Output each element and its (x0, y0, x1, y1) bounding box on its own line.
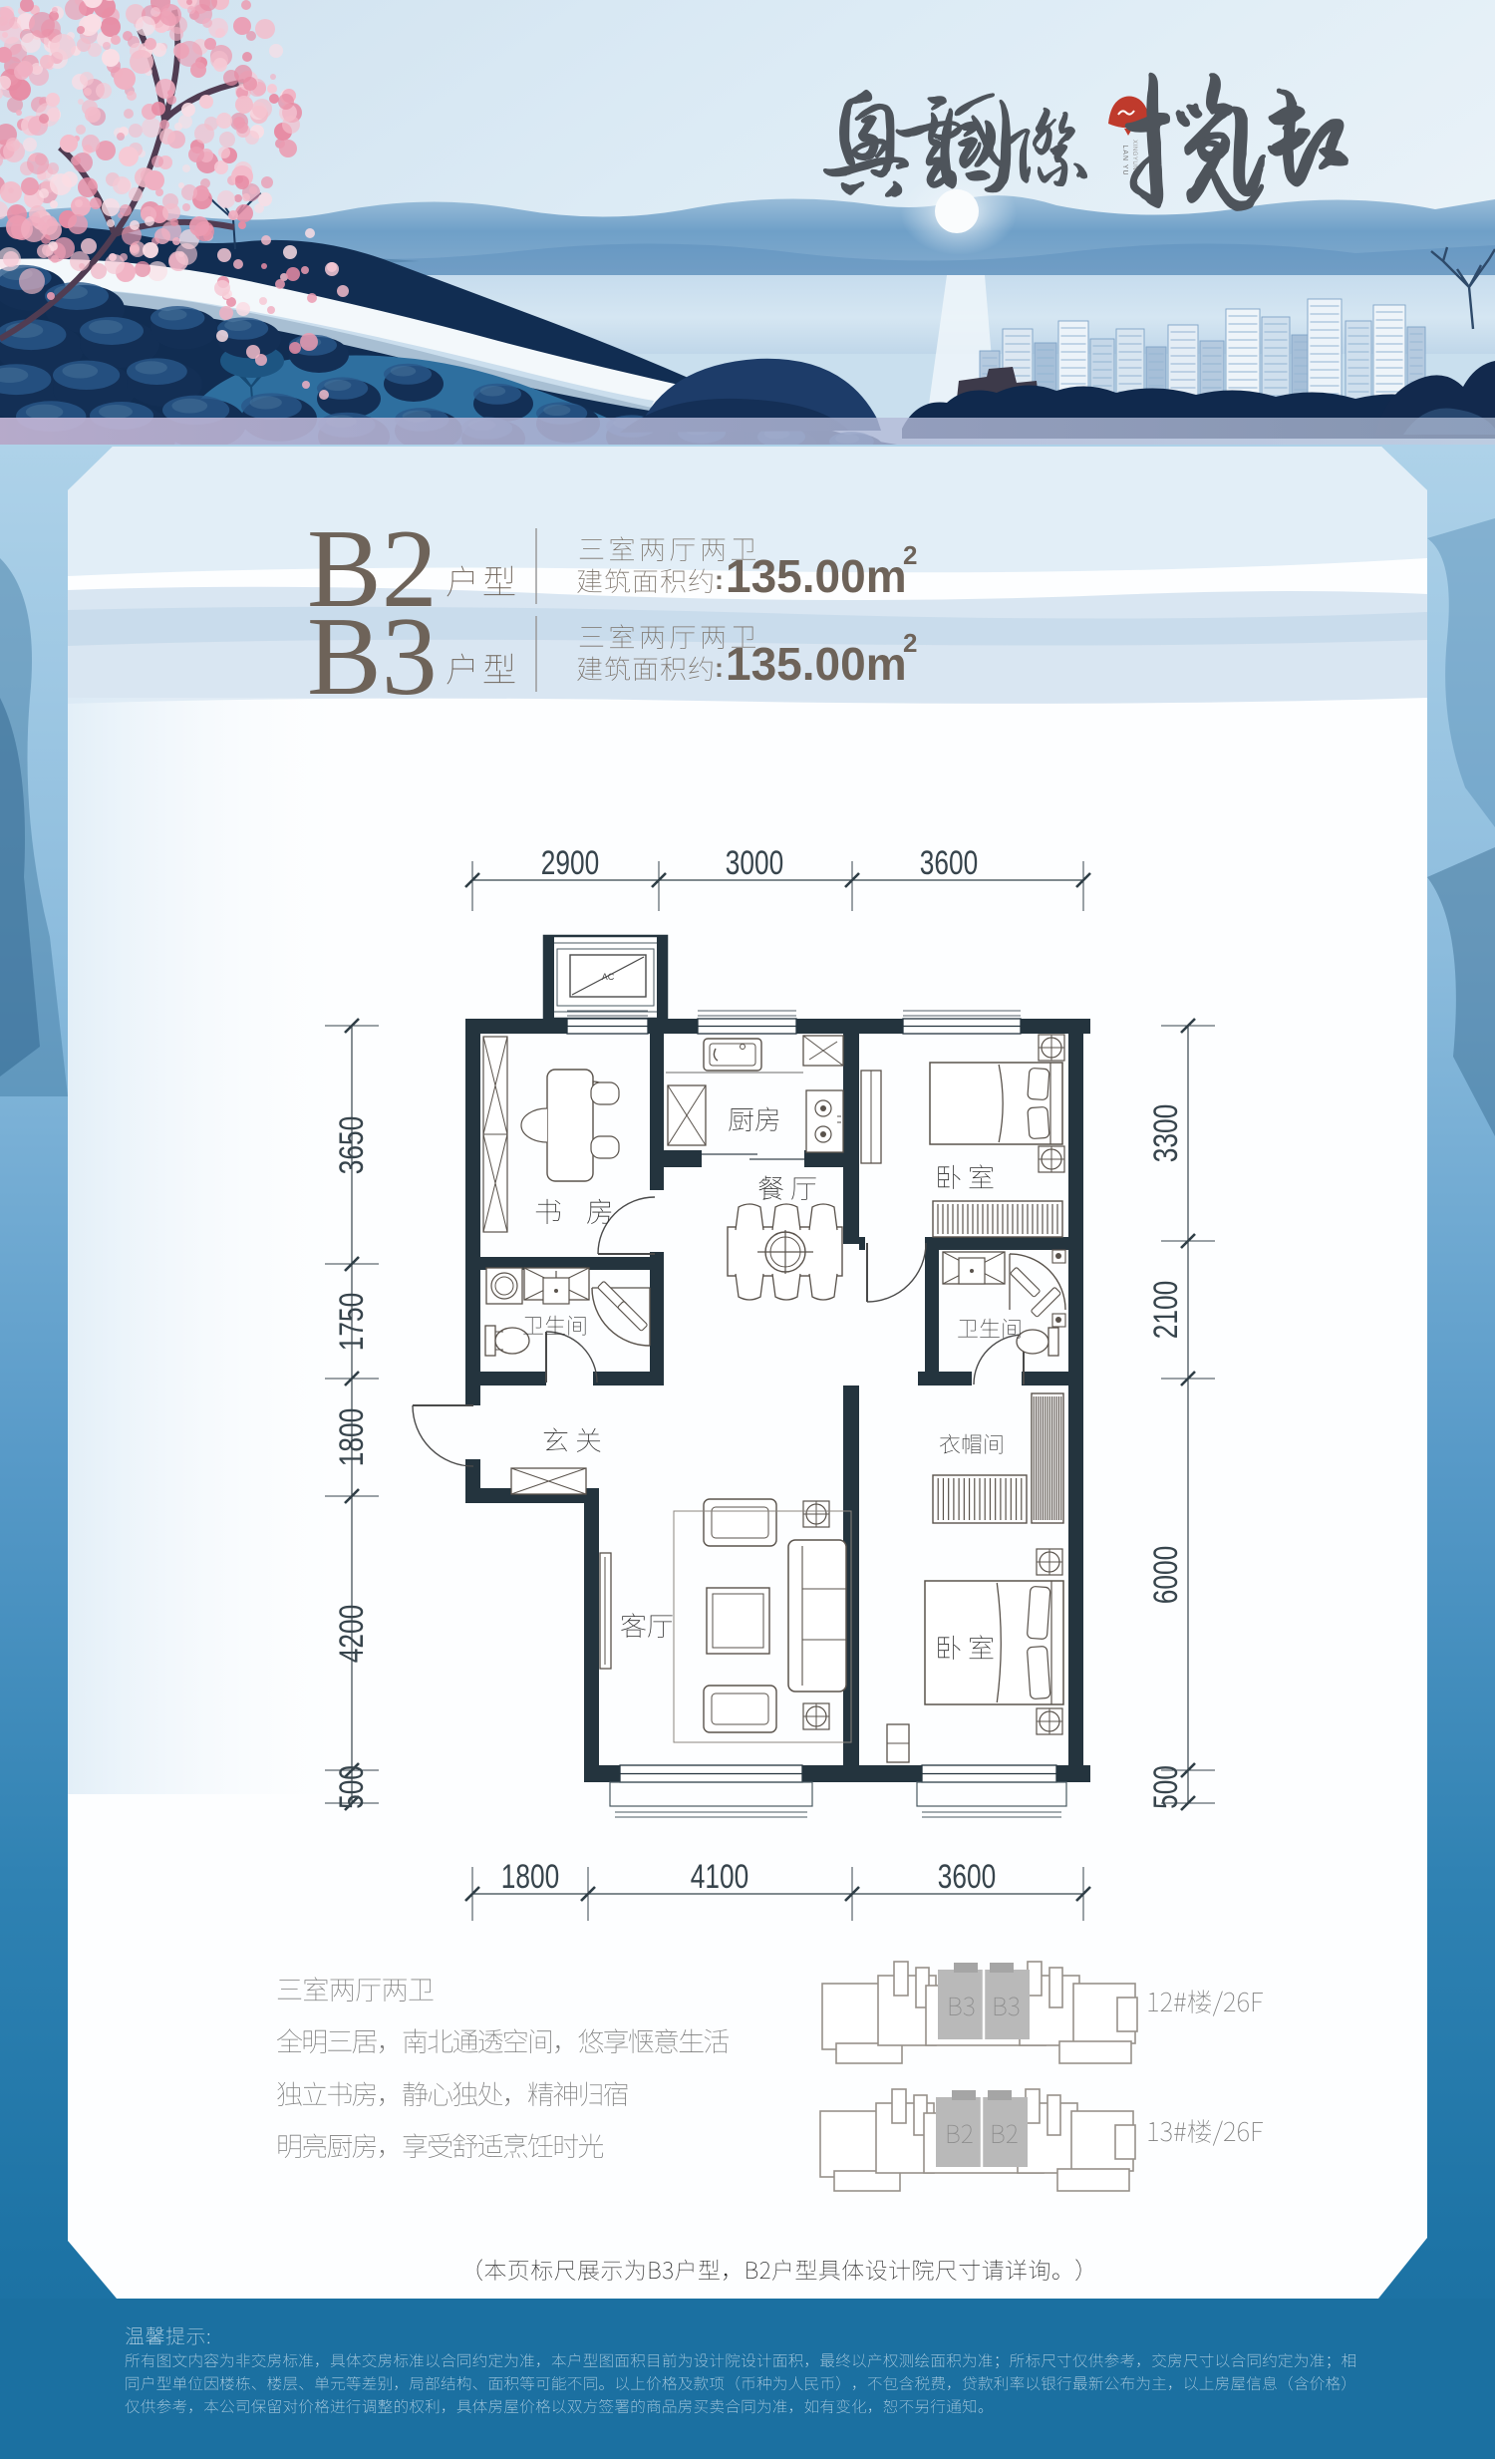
svg-text:6000: 6000 (1147, 1546, 1185, 1604)
svg-text:4100: 4100 (691, 1858, 748, 1896)
svg-text:500: 500 (333, 1765, 371, 1809)
svg-text:3600: 3600 (920, 844, 978, 882)
svg-text:3300: 3300 (1147, 1104, 1185, 1162)
svg-text:3600: 3600 (938, 1858, 996, 1896)
svg-text:2: 2 (903, 628, 917, 658)
svg-text:3650: 3650 (333, 1116, 371, 1174)
svg-text:135.00m: 135.00m (726, 638, 907, 690)
svg-text:1800: 1800 (501, 1858, 559, 1896)
svg-text:2100: 2100 (1147, 1281, 1185, 1339)
svg-text::: : (715, 653, 724, 683)
svg-text:2900: 2900 (541, 844, 599, 882)
svg-text:1800: 1800 (333, 1408, 371, 1466)
svg-text:500: 500 (1147, 1765, 1185, 1809)
svg-text:1750: 1750 (333, 1293, 371, 1351)
svg-text:3000: 3000 (726, 844, 783, 882)
svg-text:AC: AC (602, 972, 615, 982)
svg-text::: : (715, 565, 724, 595)
svg-text:B3: B3 (307, 595, 438, 719)
svg-text:135.00m: 135.00m (726, 550, 907, 602)
svg-text:2: 2 (903, 540, 917, 570)
svg-text:LAN YU: LAN YU (1121, 145, 1128, 175)
svg-text:4200: 4200 (333, 1605, 371, 1663)
